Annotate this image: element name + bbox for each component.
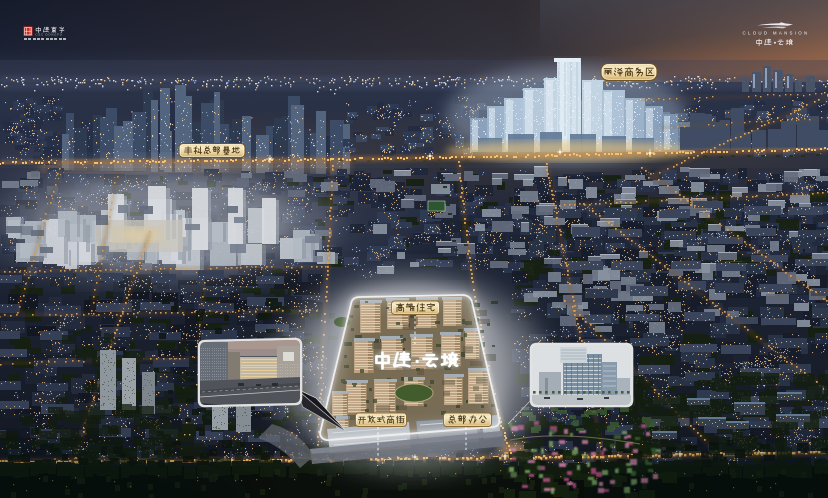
svg-text:CSC DONGFU: CSC DONGFU	[35, 33, 62, 37]
svg-text:CLOUD MANSION: CLOUD MANSION	[743, 31, 810, 36]
